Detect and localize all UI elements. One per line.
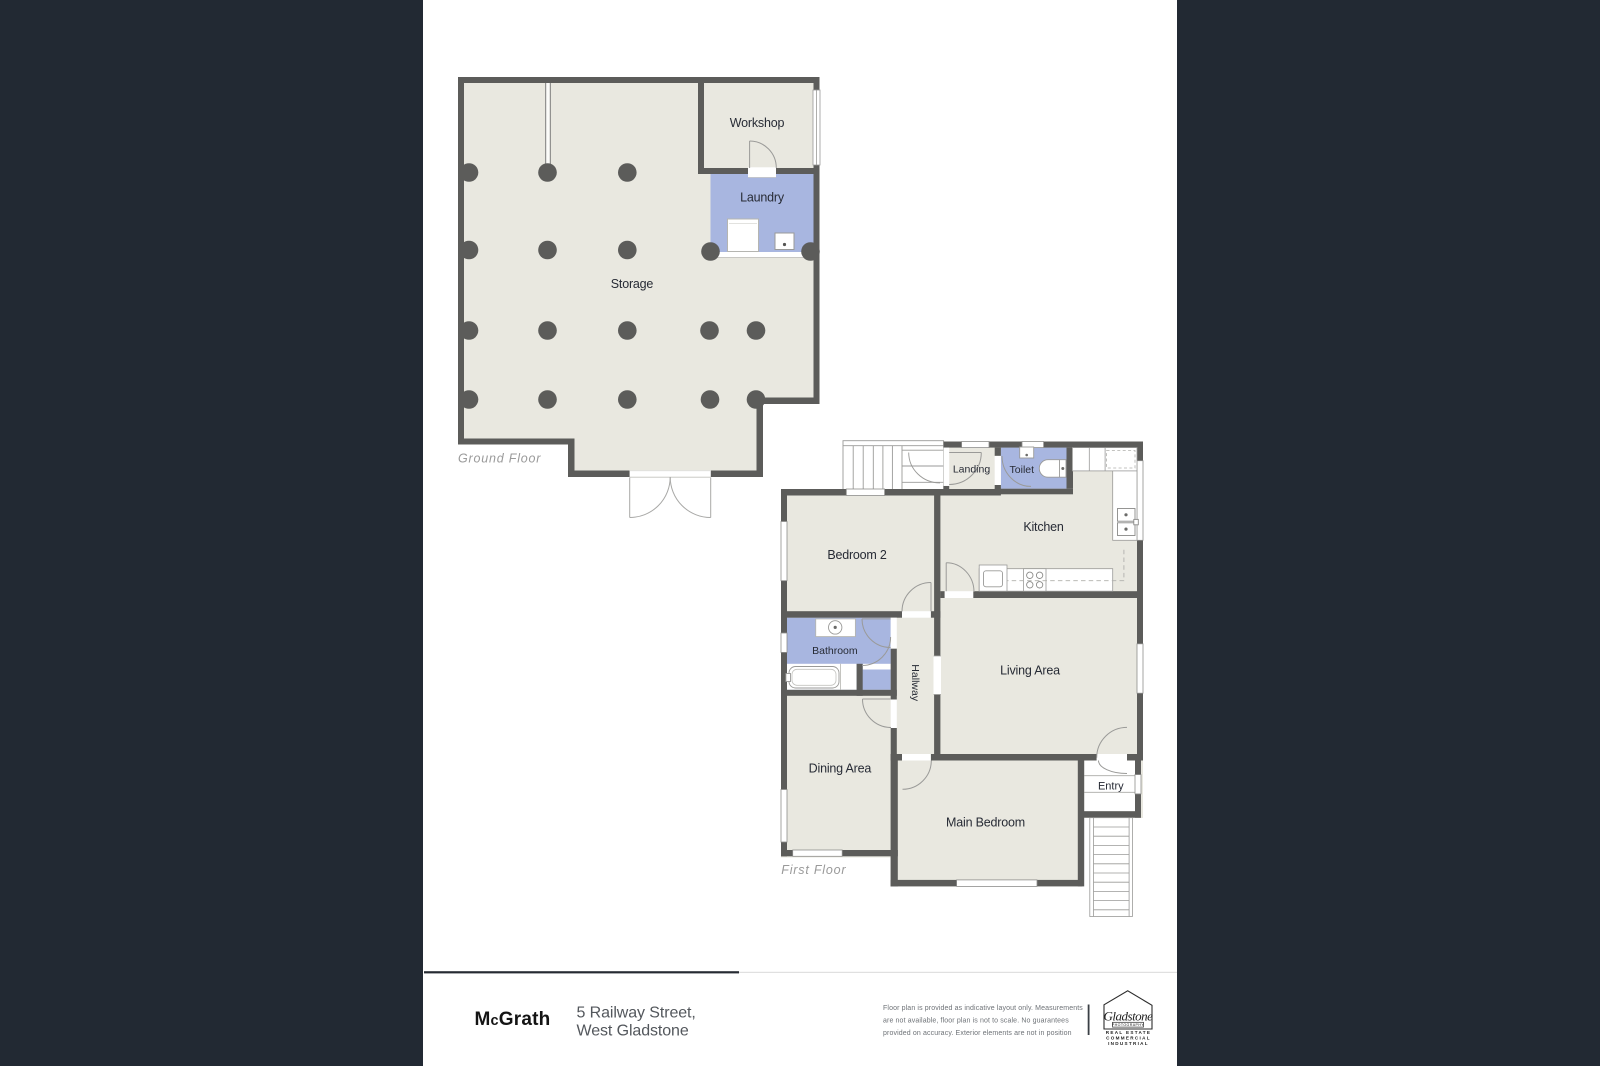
svg-text:are not available, floor plan: are not available, floor plan is not to … bbox=[883, 1017, 1069, 1024]
svg-text:Landing: Landing bbox=[953, 464, 991, 476]
svg-text:Toilet: Toilet bbox=[1010, 464, 1035, 476]
svg-text:Kitchen: Kitchen bbox=[1023, 520, 1064, 534]
svg-text:Gladstone: Gladstone bbox=[1104, 1009, 1154, 1024]
svg-text:Main Bedroom: Main Bedroom bbox=[946, 816, 1025, 830]
svg-text:Dining Area: Dining Area bbox=[809, 762, 872, 776]
svg-text:COMMERCIAL: COMMERCIAL bbox=[1106, 1036, 1151, 1041]
svg-text:Storage: Storage bbox=[611, 277, 654, 291]
svg-text:West Gladstone: West Gladstone bbox=[577, 1022, 689, 1039]
svg-text:provided on accuracy. Exterior: provided on accuracy. Exterior elements … bbox=[883, 1030, 1072, 1037]
svg-text:Bathroom: Bathroom bbox=[812, 645, 858, 657]
svg-text:First Floor: First Floor bbox=[781, 863, 846, 877]
svg-text:5 Railway Street,: 5 Railway Street, bbox=[577, 1005, 696, 1022]
svg-text:Bedroom 2: Bedroom 2 bbox=[827, 548, 887, 562]
svg-text:McGrath: McGrath bbox=[475, 1009, 551, 1030]
svg-text:Laundry: Laundry bbox=[740, 191, 785, 205]
svg-text:Entry: Entry bbox=[1098, 780, 1124, 792]
svg-text:Hallway: Hallway bbox=[909, 664, 921, 702]
svg-text:Living Area: Living Area bbox=[1000, 663, 1060, 677]
svg-text:INDUSTRIAL: INDUSTRIAL bbox=[1108, 1041, 1149, 1046]
svg-text:Ground Floor: Ground Floor bbox=[458, 452, 541, 466]
svg-text:REAL ESTATE: REAL ESTATE bbox=[1106, 1030, 1151, 1035]
svg-text:PHOTOGRAPHY: PHOTOGRAPHY bbox=[1112, 1023, 1144, 1027]
svg-text:Workshop: Workshop bbox=[730, 116, 785, 130]
svg-text:Floor plan is provided as indi: Floor plan is provided as indicative lay… bbox=[883, 1005, 1083, 1012]
